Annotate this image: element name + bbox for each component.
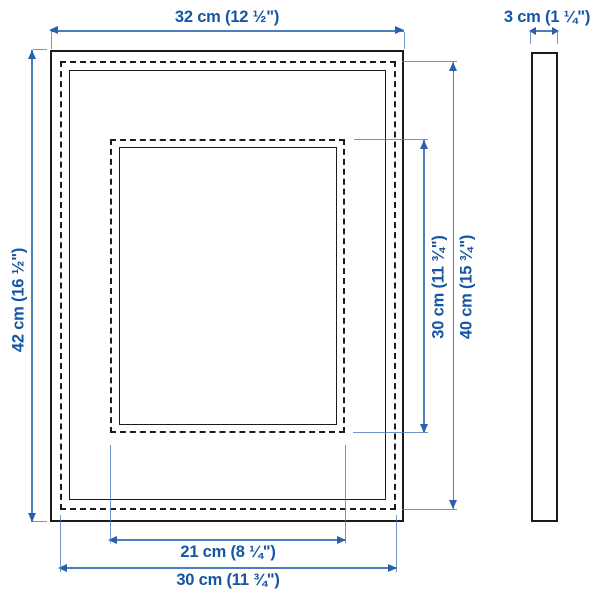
dimension-label: 21 cm (8 ¼") (180, 543, 275, 562)
extension-line (404, 32, 405, 49)
extension-line (33, 49, 47, 50)
dimension-label: 40 cm (15 ¾") (458, 235, 477, 339)
arrow-up-icon (420, 140, 428, 149)
extension-line (557, 31, 558, 44)
mat-opening-edge (119, 147, 337, 425)
dimension-label: 32 cm (12 ½") (175, 8, 279, 27)
extension-line (396, 515, 397, 572)
dimension-label: 30 cm (11 ¾") (176, 571, 279, 590)
extension-line (402, 509, 457, 510)
dimension-line (423, 140, 425, 433)
arrow-down-icon (449, 500, 457, 509)
extension-line (345, 445, 346, 543)
extension-line (530, 31, 531, 44)
extension-line (60, 515, 61, 572)
extension-line (353, 432, 428, 433)
frame-dimension-diagram: 32 cm (12 ½") 3 cm (1 ¼") 42 cm (16 ½") … (0, 0, 600, 600)
extension-line (33, 521, 47, 522)
dimension-label: 30 cm (11 ¾") (430, 235, 449, 338)
extension-line (354, 139, 428, 140)
dimension-line (60, 567, 397, 569)
frame-side-view (531, 52, 558, 522)
extension-line (51, 32, 52, 49)
arrow-up-icon (449, 62, 457, 71)
extension-line (402, 61, 457, 62)
dimension-line (51, 30, 404, 32)
dimension-label: 3 cm (1 ¼") (504, 8, 590, 27)
dimension-line (110, 539, 346, 541)
dimension-label: 42 cm (16 ½") (10, 248, 29, 352)
arrow-up-icon (28, 50, 36, 59)
extension-line (110, 445, 111, 543)
dimension-line (453, 62, 455, 509)
dimension-line (31, 50, 33, 522)
